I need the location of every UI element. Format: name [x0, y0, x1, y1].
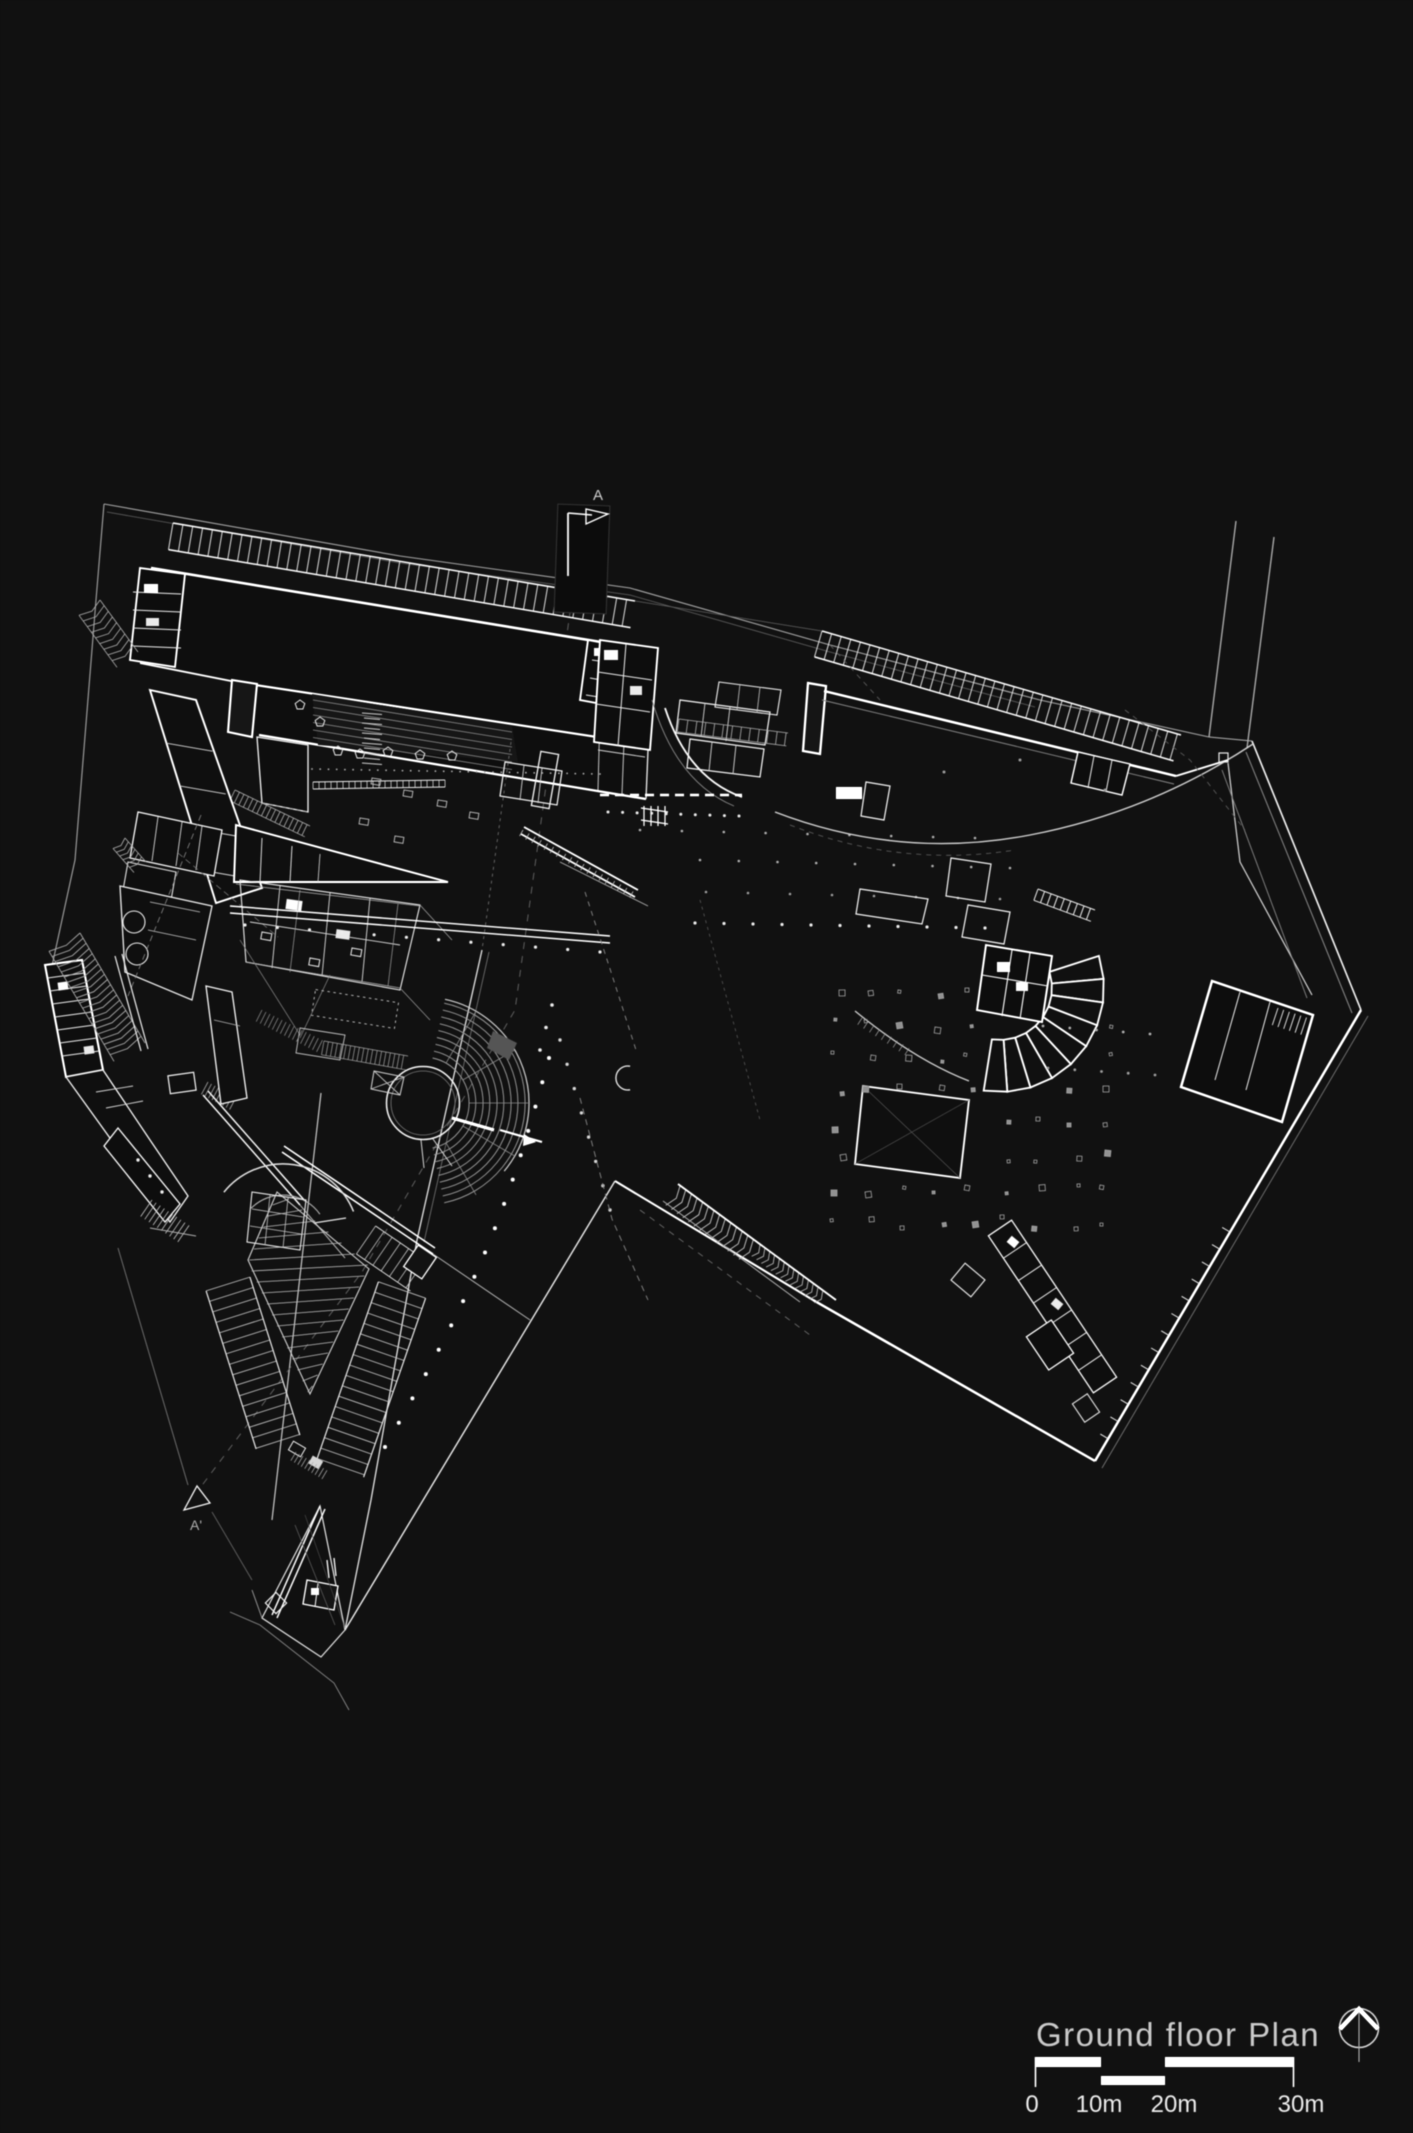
svg-text:10m: 10m — [1076, 2091, 1123, 2118]
svg-text:20m: 20m — [1151, 2091, 1198, 2118]
svg-text:Ground floor Plan: Ground floor Plan — [1036, 2016, 1320, 2053]
svg-text:A': A' — [190, 1517, 202, 1533]
svg-text:30m: 30m — [1278, 2091, 1325, 2118]
svg-text:0: 0 — [1025, 2091, 1038, 2118]
svg-text:A: A — [593, 487, 603, 504]
